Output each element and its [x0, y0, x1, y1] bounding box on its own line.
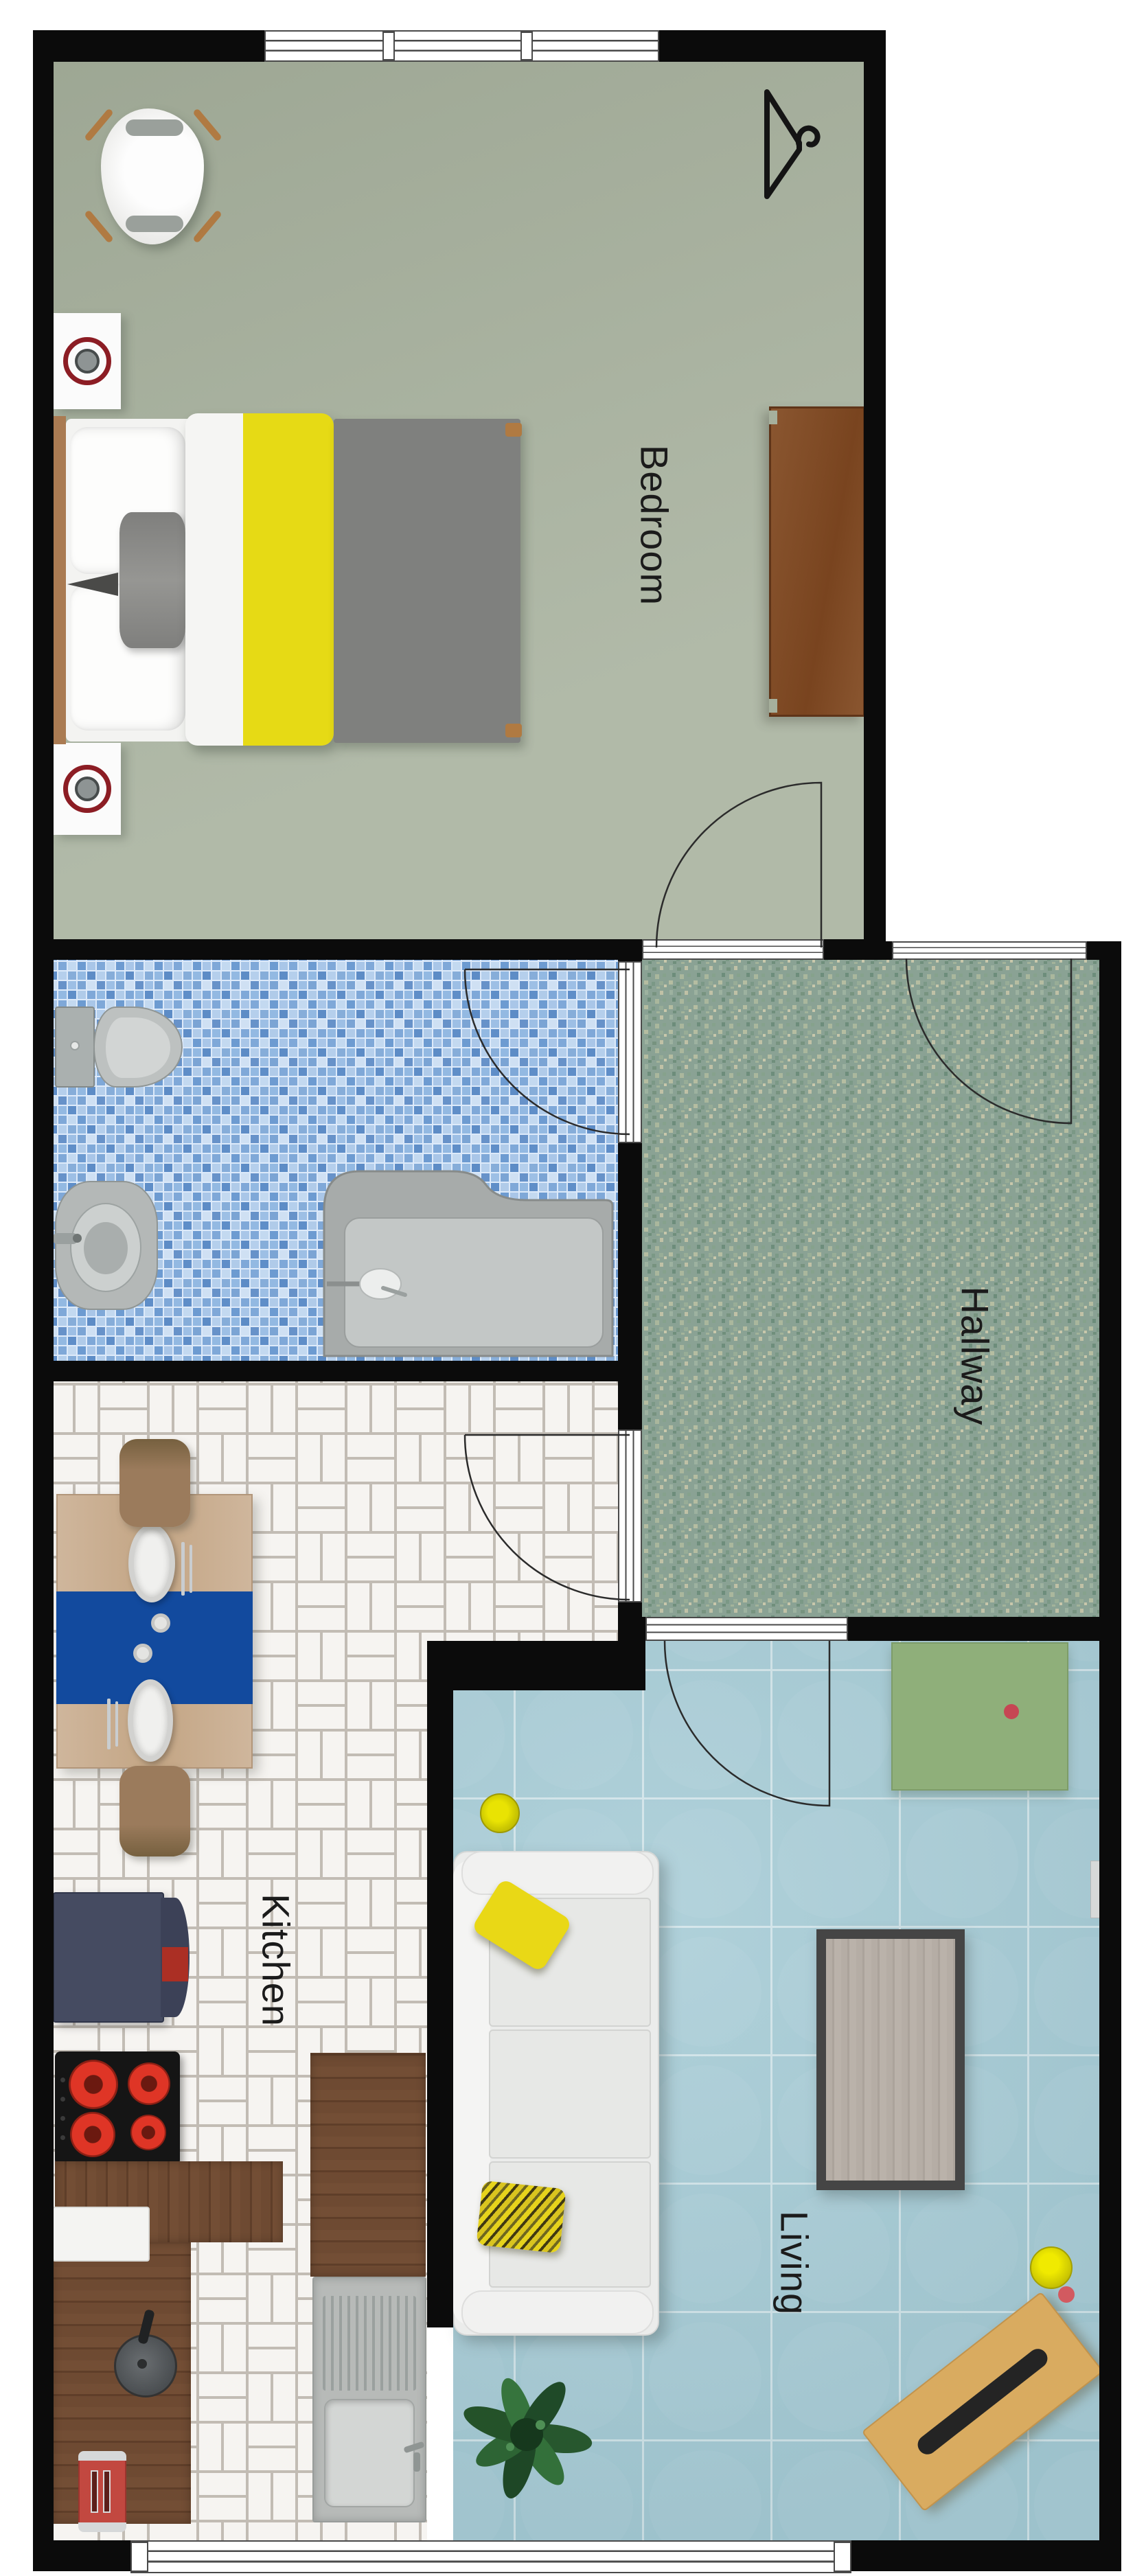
kitchen-label: Kitchen — [254, 1894, 299, 2027]
living-label: Living — [772, 2211, 817, 2315]
kitchen-door-arc — [465, 1435, 630, 1600]
bedroom-door-arc — [656, 783, 821, 947]
bathroom-door-arc — [465, 969, 630, 1134]
hallway-label: Hallway — [953, 1286, 998, 1425]
living-door-arc — [665, 1641, 829, 1806]
floor-plan: Bedroom Hallway Kitchen Living — [0, 0, 1146, 2576]
bedroom-label: Bedroom — [632, 445, 677, 606]
entry-door-arc — [906, 958, 1071, 1123]
